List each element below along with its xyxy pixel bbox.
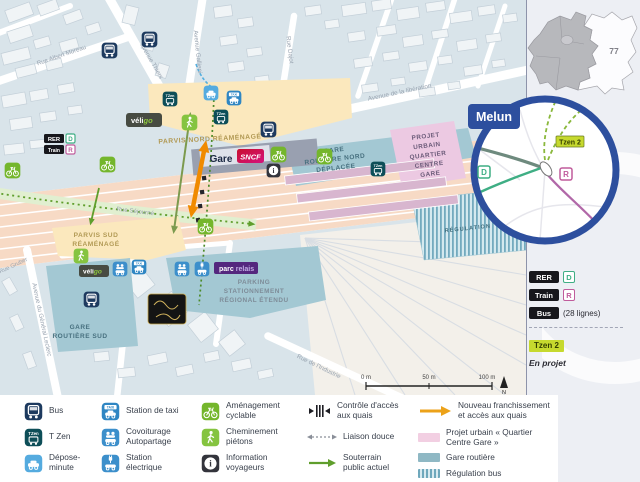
taxi-icon <box>227 91 242 106</box>
scale-0: 0 m <box>361 375 371 381</box>
station-electrique-icon <box>195 262 210 277</box>
legend-col-1: Bus T Zen Dépose-minute <box>24 401 88 482</box>
regulation-swatch <box>418 469 440 478</box>
bus-badge: Bus <box>529 307 559 319</box>
legend-col-4: Contrôle d'accès aux quais Liaison douce… <box>307 401 405 482</box>
inset-d-label: D <box>481 168 487 177</box>
bike-icon <box>100 157 116 173</box>
map-train-r: R <box>68 147 73 154</box>
covoiturage-icon <box>101 428 120 447</box>
label-parvis-sud-2: RÉAMÉNAGÉ <box>72 239 119 248</box>
legend-item-pietons: Cheminement piétons <box>201 427 294 447</box>
paris-shape <box>561 36 573 45</box>
legend-row-rer: RER D <box>529 271 637 283</box>
legend-label: Information voyageurs <box>226 453 294 472</box>
legend-label: Aménagement cyclable <box>226 401 294 420</box>
label-parking-3: RÉGIONAL ÉTENDU <box>219 295 288 304</box>
rer-d-box: D <box>563 271 575 283</box>
bus-icon <box>142 32 158 48</box>
legend-row-bus: Bus (28 lignes) <box>529 307 637 319</box>
tzen-icon <box>371 162 386 177</box>
map-rer-d: D <box>68 136 73 143</box>
bike-icon <box>198 219 214 235</box>
melun-station-map-infographic: TZen TAXI <box>0 0 640 482</box>
label-parking-2: STATIONNEMENT <box>224 288 285 295</box>
bike-icon <box>317 149 333 165</box>
veligo-badge-south: véligo <box>79 265 109 277</box>
liaison-douce-icon <box>307 432 337 442</box>
legend-col-2: Station de taxi Covoiturage Autopartage … <box>101 401 188 482</box>
depose-minute-icon <box>24 454 43 473</box>
taxi-icon <box>132 260 147 275</box>
legend-item-controle: Contrôle d'accès aux quais <box>307 401 405 421</box>
legend-label: Souterrain public actuel <box>343 453 405 472</box>
inset-r-label: R <box>563 170 569 179</box>
legend-item-electrique: Station électrique <box>101 453 188 473</box>
legend-item-taxi: Station de taxi <box>101 401 188 421</box>
map-rer-badge: RER <box>48 137 61 143</box>
legend-label: T Zen <box>49 432 71 442</box>
bus-icon <box>84 292 100 308</box>
legend-item-projet: Projet urbain « Quartier Centre Gare » <box>418 428 556 447</box>
legend-col-3: Aménagement cyclable Cheminement piétons… <box>201 401 294 482</box>
sncf-text: SNCF <box>240 153 261 162</box>
legend-label: Régulation bus <box>446 469 501 479</box>
rer-badge: RER <box>529 271 559 283</box>
svg-text:parcrelais: parcrelais <box>219 266 254 273</box>
legend-item-gare-routiere: Gare routière <box>418 453 556 463</box>
legend-col-5: Nouveau franchissement et accès aux quai… <box>418 401 556 482</box>
melun-inset: D R Tzen 2 Melun <box>468 99 616 241</box>
bike-icon <box>201 402 220 421</box>
legend-item-covoiturage: Covoiturage Autopartage <box>101 427 188 447</box>
tzen2-badge: Tzen 2 <box>529 340 564 352</box>
legend-item-cyclable: Aménagement cyclable <box>201 401 294 421</box>
legend-item-franchissement: Nouveau franchissement et accès aux quai… <box>418 401 556 420</box>
veligo-text-2: go <box>143 116 154 125</box>
train-badge: Train <box>529 289 559 301</box>
tzen-icon <box>163 92 178 107</box>
label-parvis-sud-1: PARVIS SUD <box>74 232 119 239</box>
parc-relais-text-1: parc <box>219 266 234 273</box>
legend-label: Bus <box>49 406 63 416</box>
map-legend: Bus T Zen Dépose-minute Station de taxi … <box>24 401 556 482</box>
legend-label: Liaison douce <box>343 432 394 442</box>
legend-item-regulation: Régulation bus <box>418 469 556 479</box>
depose-minute-icon <box>204 86 219 101</box>
city-map: PARVIS NORD RÉAMÉNAGÉ PARVIS SUD RÉAMÉNA… <box>0 0 528 398</box>
covoiturage-icon <box>113 262 128 277</box>
label-parking-1: PARKING <box>238 279 271 286</box>
bus-lines-note: (28 lignes) <box>563 309 600 318</box>
veligo-badge-north: véligo <box>126 113 162 127</box>
veligo-south-text-1: véli <box>83 269 94 276</box>
tzen2-status: En projet <box>529 358 637 368</box>
information-icon <box>267 164 281 178</box>
pedestrian-icon <box>182 115 198 131</box>
gare-text: Gare <box>210 154 233 165</box>
veligo-south-text-2: go <box>93 269 102 276</box>
scale-50: 50 m <box>422 375 435 381</box>
new-access-arrow-icon <box>418 405 452 417</box>
station-electrique-icon <box>101 454 120 473</box>
tzen-icon <box>24 428 43 447</box>
projet-swatch <box>418 433 440 442</box>
veligo-text-1: véli <box>131 116 144 125</box>
label-gare-routiere-sud-2: ROUTIÈRE SUD <box>52 331 107 340</box>
svg-text:véligo: véligo <box>83 269 102 276</box>
legend-item-info: Information voyageurs <box>201 453 294 473</box>
access-control-icon <box>307 403 331 419</box>
legend-label: Nouveau franchissement et accès aux quai… <box>458 401 556 420</box>
souterrain-icon <box>307 458 337 468</box>
legend-label: Gare routière <box>446 453 495 463</box>
map-train-badge: Train <box>48 148 60 154</box>
legend-label: Projet urbain « Quartier Centre Gare » <box>446 428 556 447</box>
inset-tzen2-label: Tzen 2 <box>559 140 581 147</box>
bike-icon <box>5 163 21 179</box>
bike-icon <box>271 147 287 163</box>
bus-icon <box>261 122 277 138</box>
taxi-icon <box>101 402 120 421</box>
dashed-separator <box>529 327 623 328</box>
legend-row-train: Train R <box>529 289 637 301</box>
legend-item-souterrain: Souterrain public actuel <box>307 453 405 473</box>
svg-text:véligo: véligo <box>131 116 153 125</box>
tzen-icon <box>214 110 229 125</box>
covoiturage-icon <box>175 262 190 277</box>
legend-label: Station de taxi <box>126 406 179 416</box>
script-logo-plaque <box>148 294 186 324</box>
parc-relais-badge: parcrelais <box>214 262 258 274</box>
pedestrian-icon <box>74 249 89 264</box>
legend-label: Station électrique <box>126 453 184 472</box>
pedestrian-icon <box>201 428 220 447</box>
legend-item-liaison: Liaison douce <box>307 427 405 447</box>
legend-label: Covoiturage Autopartage <box>126 427 188 446</box>
legend-label: Dépose-minute <box>49 453 88 472</box>
line-legend: RER D Train R Bus (28 lignes) Tzen 2 En … <box>529 271 637 368</box>
scale-100: 100 m <box>479 375 496 381</box>
legend-item-bus: Bus <box>24 401 88 421</box>
melun-title: Melun <box>476 110 512 124</box>
parc-relais-text-2: relais <box>236 266 254 273</box>
train-r-box: R <box>563 289 575 301</box>
dept-77-label: 77 <box>609 46 619 56</box>
bus-icon <box>102 43 118 59</box>
legend-item-depose: Dépose-minute <box>24 453 88 473</box>
label-gare-routiere-sud-1: GARE <box>70 324 91 331</box>
legend-label: Contrôle d'accès aux quais <box>337 401 403 420</box>
bus-icon <box>24 402 43 421</box>
gare-routiere-swatch <box>418 453 440 462</box>
information-icon <box>201 454 220 473</box>
legend-item-tzen: T Zen <box>24 427 88 447</box>
legend-label: Cheminement piétons <box>226 427 294 446</box>
